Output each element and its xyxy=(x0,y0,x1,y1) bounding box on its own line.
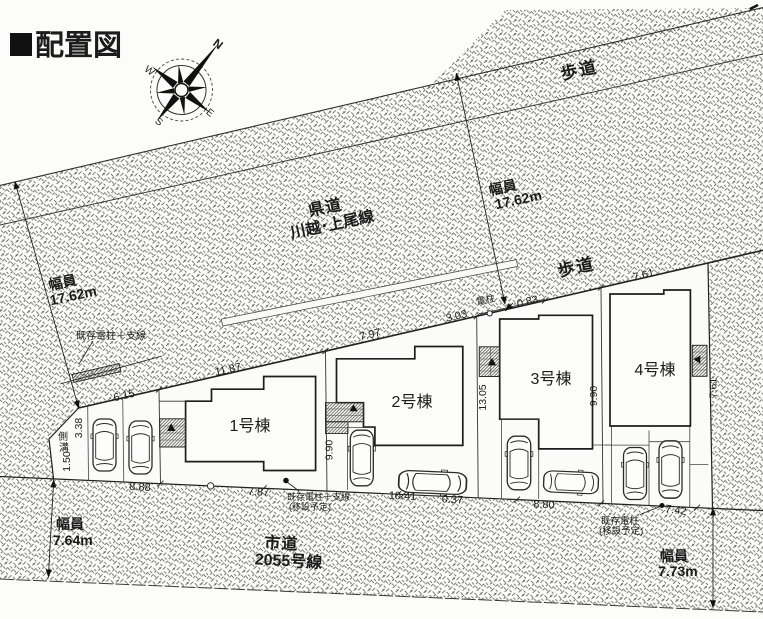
svg-text:9.90: 9.90 xyxy=(324,440,336,461)
svg-text:10.41: 10.41 xyxy=(388,490,416,503)
svg-text:9.90: 9.90 xyxy=(588,386,600,407)
svg-text:(移設予定): (移設予定) xyxy=(599,525,643,537)
svg-text:8.80: 8.80 xyxy=(533,498,555,511)
svg-text:既存電柱＋支線: 既存電柱＋支線 xyxy=(287,491,350,502)
svg-text:7.87: 7.87 xyxy=(247,486,269,499)
svg-text:7.73m: 7.73m xyxy=(658,563,698,579)
svg-text:側: 側 xyxy=(58,430,68,443)
svg-text:配置図: 配置図 xyxy=(35,30,122,62)
svg-text:8.88: 8.88 xyxy=(129,481,151,494)
svg-text:3.38: 3.38 xyxy=(73,418,85,439)
svg-text:7.61: 7.61 xyxy=(708,378,720,399)
svg-text:溝: 溝 xyxy=(59,441,69,454)
svg-text:(移設予定): (移設予定) xyxy=(289,501,331,512)
svg-text:既存電柱＋支線: 既存電柱＋支線 xyxy=(76,329,146,342)
svg-text:1号棟: 1号棟 xyxy=(230,417,271,435)
svg-text:0.37: 0.37 xyxy=(441,493,463,506)
svg-text:7.64m: 7.64m xyxy=(53,532,93,548)
svg-text:幅員: 幅員 xyxy=(660,548,688,564)
svg-text:幅員: 幅員 xyxy=(56,516,84,532)
svg-text:13.05: 13.05 xyxy=(477,384,489,410)
svg-text:2号棟: 2号棟 xyxy=(392,393,433,411)
svg-text:4号棟: 4号棟 xyxy=(635,361,676,379)
svg-text:3号棟: 3号棟 xyxy=(531,370,572,388)
svg-text:市道: 市道 xyxy=(264,533,299,554)
svg-text:1.50: 1.50 xyxy=(61,451,73,472)
